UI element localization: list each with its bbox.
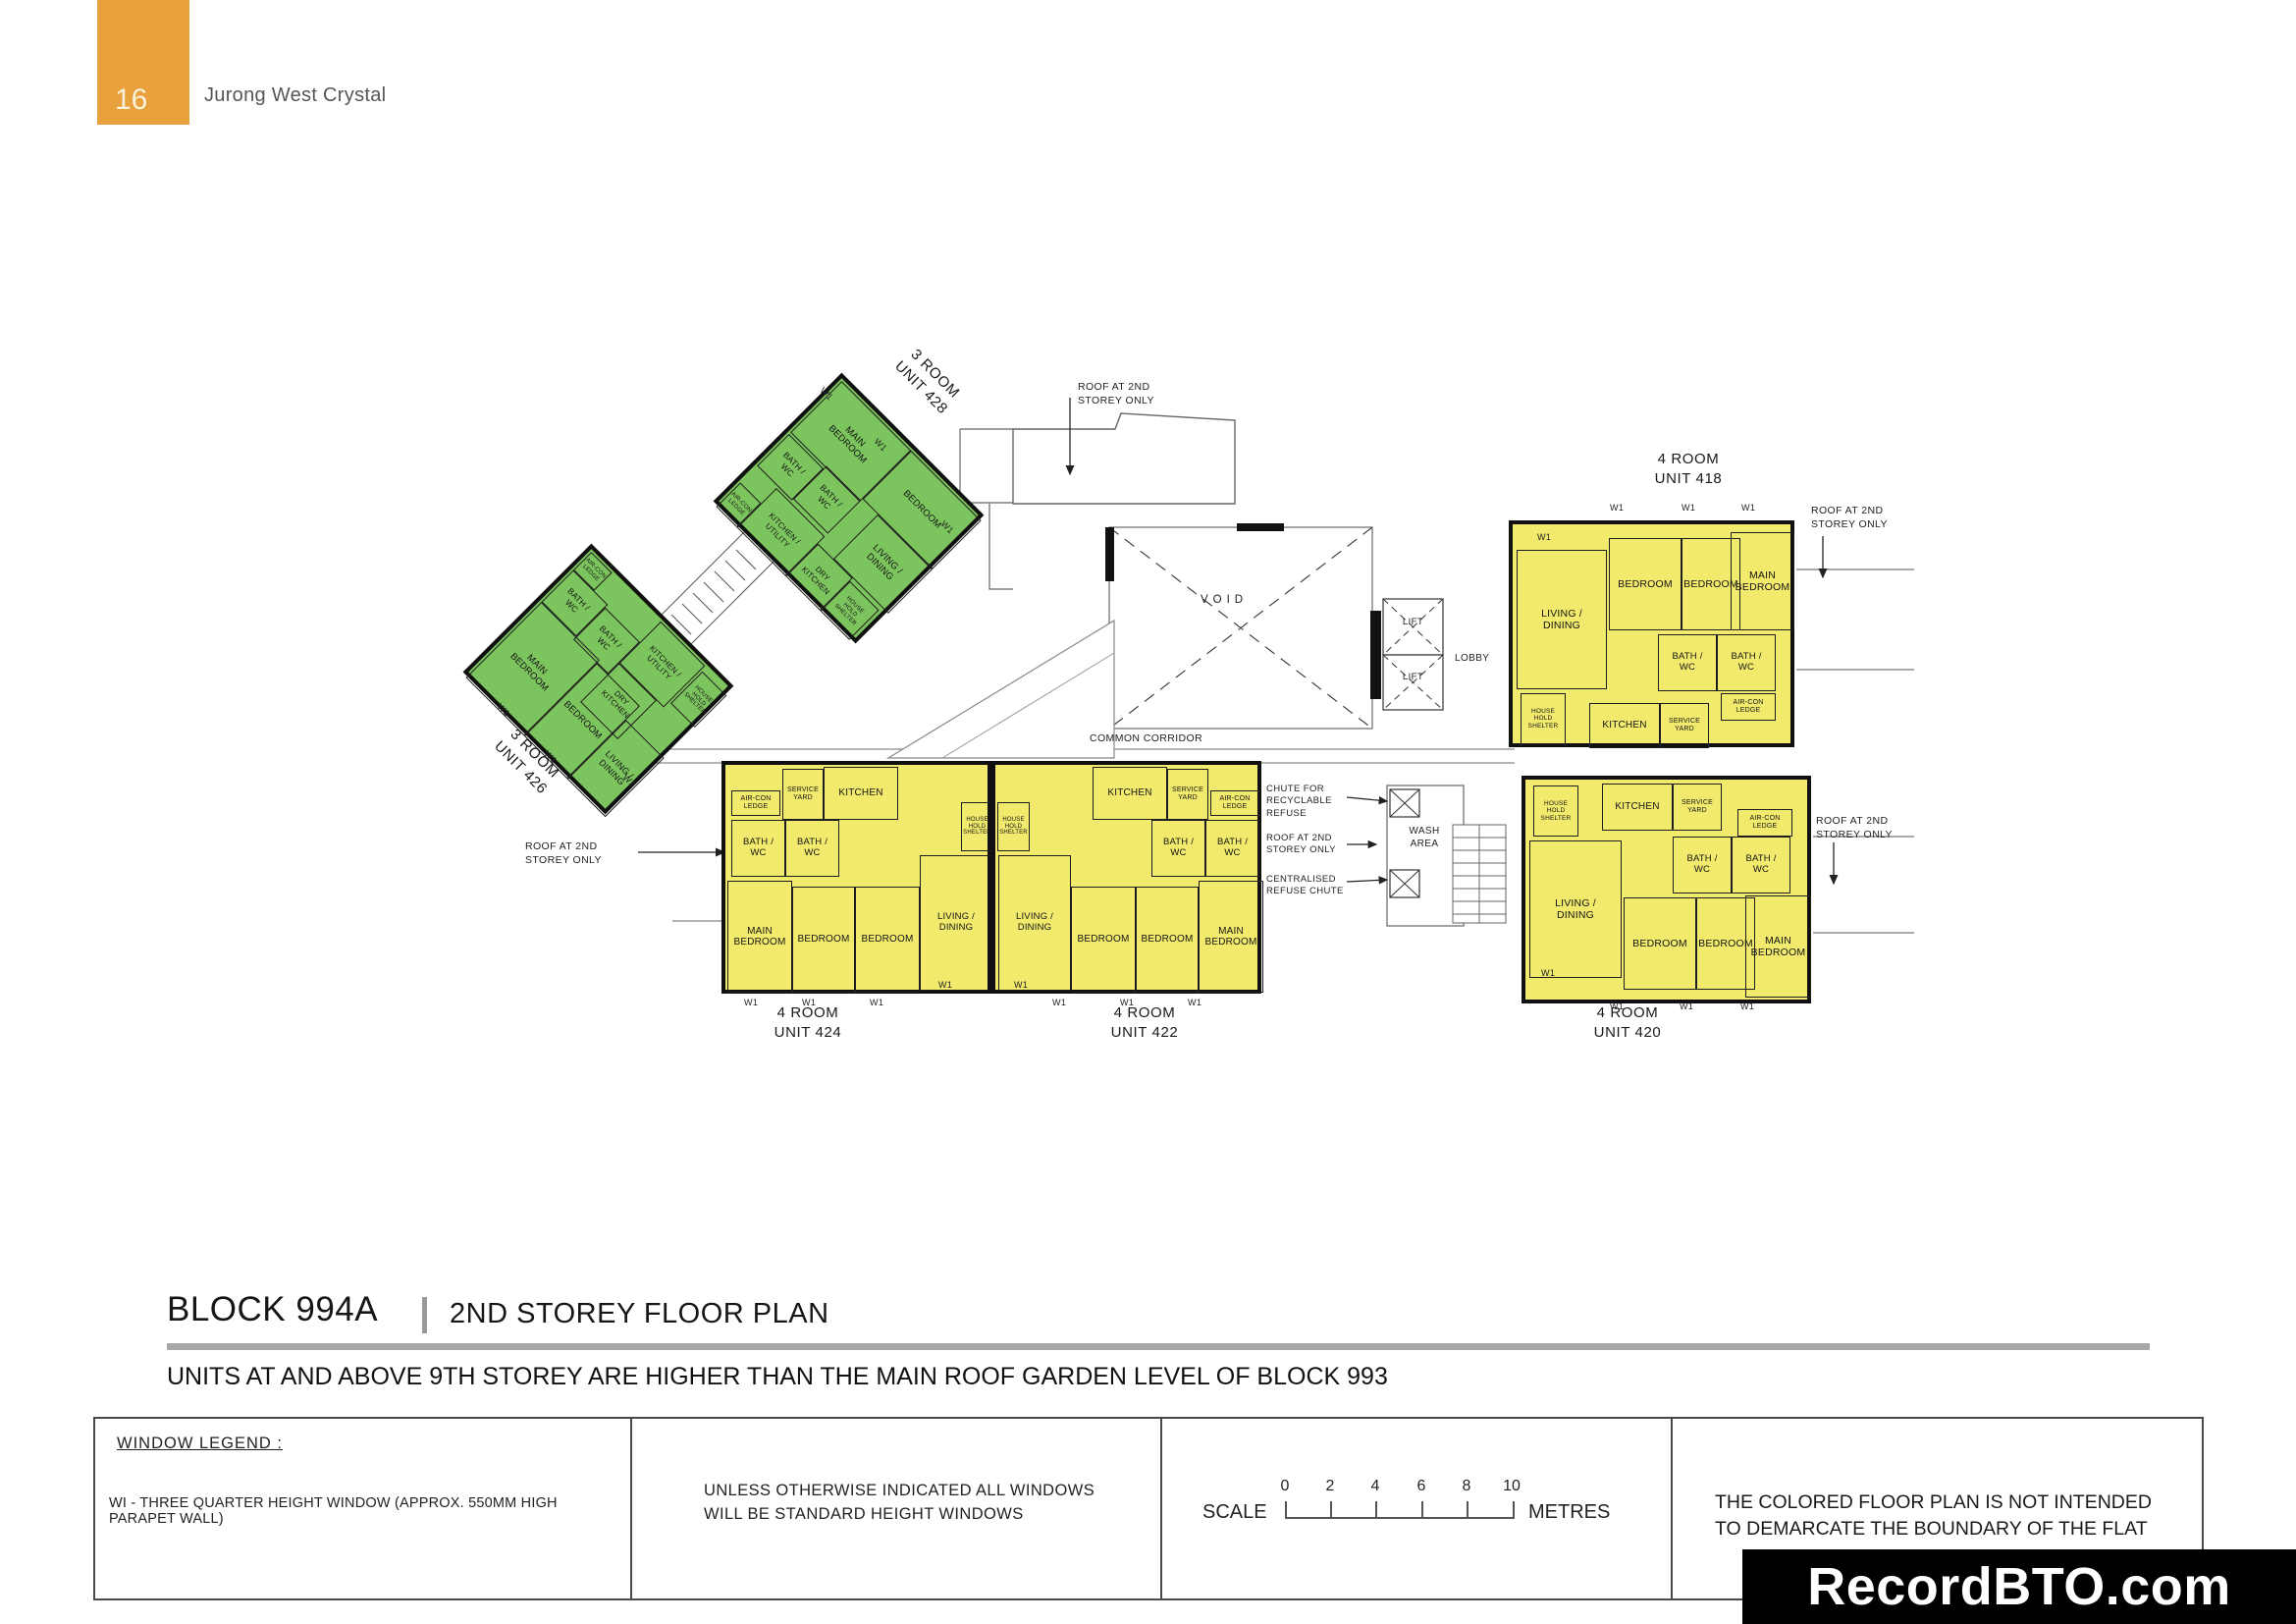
w1-window-label: W1 xyxy=(1740,1001,1754,1011)
w1-window-label: W1 xyxy=(873,436,889,453)
watermark-banner: RecordBTO.com xyxy=(1742,1549,2296,1624)
title-rule xyxy=(167,1343,2150,1350)
w1-window-label: W1 xyxy=(1537,532,1551,542)
scale-tick: 4 xyxy=(1363,1478,1387,1495)
w1-window-label: W1 xyxy=(1610,503,1624,513)
scale-tick: 8 xyxy=(1455,1478,1478,1495)
page-number-badge: 16 xyxy=(97,0,189,125)
scale-tick: 0 xyxy=(1273,1478,1297,1495)
scale-tick: 10 xyxy=(1500,1478,1523,1495)
w1-window-label: W1 xyxy=(1682,503,1695,513)
page-number: 16 xyxy=(115,83,147,117)
project-name: Jurong West Crystal xyxy=(204,84,386,107)
w1-window-label: W1 xyxy=(1680,1001,1693,1011)
table-divider xyxy=(630,1419,632,1598)
scale-tick: 6 xyxy=(1410,1478,1433,1495)
colored-plan-disclaimer: THE COLORED FLOOR PLAN IS NOT INTENDED T… xyxy=(1715,1489,2152,1543)
w1-window-label: W1 xyxy=(1014,980,1028,990)
title-divider xyxy=(422,1297,427,1333)
plan-title: 2ND STOREY FLOOR PLAN xyxy=(450,1298,829,1330)
w1-window-label: W1 xyxy=(1052,998,1066,1007)
w1-window-label: W1 xyxy=(1610,1001,1624,1011)
w1-window-label: W1 xyxy=(1188,998,1201,1007)
scale-ruler: 0 2 4 6 8 10 xyxy=(1285,1478,1515,1525)
w1-window-label: W1 xyxy=(543,748,560,765)
block-title: BLOCK 994A xyxy=(167,1290,378,1329)
watermark-text: RecordBTO.com xyxy=(1807,1556,2231,1617)
floor-plan-canvas: MAIN BEDROOMBEDROOMBATH / WCBATH / WCLIV… xyxy=(324,245,1914,1070)
window-legend-item: WI - THREE QUARTER HEIGHT WINDOW (APPROX… xyxy=(109,1495,614,1527)
w1-window-label: W1 xyxy=(496,701,512,718)
scale-tick: 2 xyxy=(1318,1478,1342,1495)
w1-window-label: W1 xyxy=(938,980,952,990)
w1-window-label: W1 xyxy=(870,998,883,1007)
windows-note: UNLESS OTHERWISE INDICATED ALL WINDOWS W… xyxy=(704,1480,1095,1527)
w1-window-label: W1 xyxy=(1120,998,1134,1007)
w1-window-label: W1 xyxy=(1741,503,1755,513)
metres-label: METRES xyxy=(1528,1501,1610,1524)
floor-plan-page: 16 Jurong West Crystal xyxy=(0,0,2296,1624)
storey-note: UNITS AT AND ABOVE 9TH STOREY ARE HIGHER… xyxy=(167,1363,1388,1391)
w1-window-label: W1 xyxy=(744,998,758,1007)
table-divider xyxy=(1671,1419,1673,1598)
w1-window-label: W1 xyxy=(819,385,835,402)
w1-window-label: W1 xyxy=(939,518,956,535)
w1-window-label: W1 xyxy=(802,998,816,1007)
window-legend-title: WINDOW LEGEND : xyxy=(117,1435,283,1453)
w1-window-label: W1 xyxy=(621,772,638,788)
scale-ruler-baseline xyxy=(1285,1517,1515,1519)
scale-label: SCALE xyxy=(1202,1501,1267,1524)
table-divider xyxy=(1160,1419,1162,1598)
w1-window-label: W1 xyxy=(1541,968,1555,978)
